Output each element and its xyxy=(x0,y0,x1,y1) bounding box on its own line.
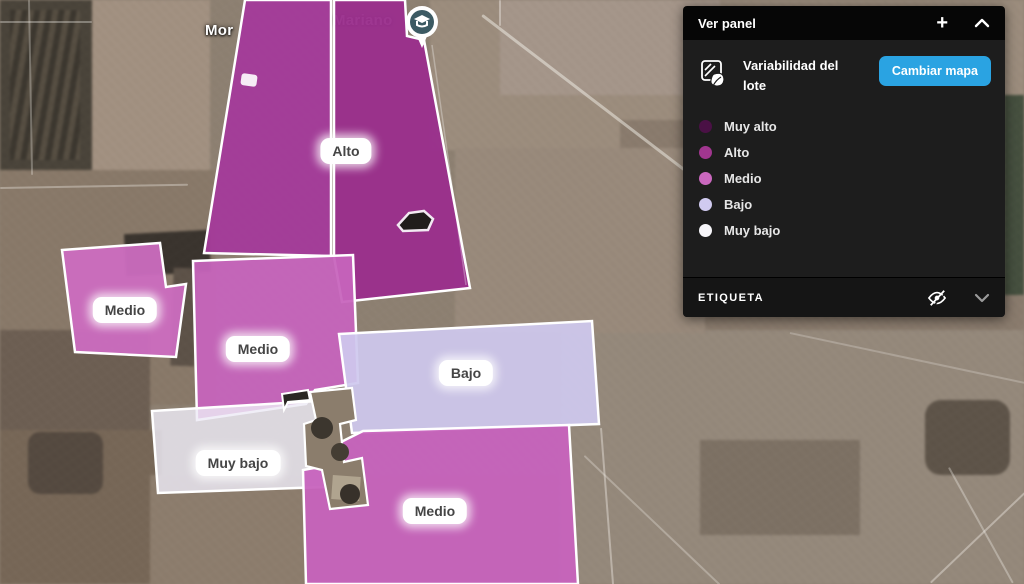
layer-name: Variabilidad del lote xyxy=(743,56,861,95)
legend-dot-alto xyxy=(699,146,712,159)
etiqueta-label: ETIQUETA xyxy=(698,292,764,304)
panel-header: Ver panel + xyxy=(683,6,1005,40)
map-pin[interactable] xyxy=(400,2,444,52)
zone-label-chip-medio-center: Medio xyxy=(226,336,290,362)
zone-label-chip-medio-bottom: Medio xyxy=(403,498,467,524)
panel-body: Variabilidad del lote Cambiar mapa Muy a… xyxy=(683,40,1005,317)
legend-dot-muy-bajo xyxy=(699,224,712,237)
legend-item: Muy alto xyxy=(699,113,989,139)
zone-label-chip-alto: Alto xyxy=(320,138,371,164)
zone-polygon-alto-left[interactable] xyxy=(204,0,331,256)
layer-row: Variabilidad del lote Cambiar mapa xyxy=(683,40,1005,101)
variability-icon xyxy=(699,58,729,88)
zone-label-chip-bajo: Bajo xyxy=(439,360,493,386)
legend-item: Muy bajo xyxy=(699,217,989,243)
chevron-up-icon xyxy=(974,17,990,29)
boundary-notch xyxy=(240,73,258,87)
legend-dot-medio xyxy=(699,172,712,185)
visibility-off-icon[interactable] xyxy=(926,289,948,307)
change-map-button[interactable]: Cambiar mapa xyxy=(879,56,991,86)
panel-title: Ver panel xyxy=(698,16,936,31)
ver-panel: Ver panel + Variabilidad del lote Cambia… xyxy=(683,6,1005,317)
legend-dot-muy-alto xyxy=(699,120,712,133)
legend-item: Alto xyxy=(699,139,989,165)
legend-item: Medio xyxy=(699,165,989,191)
legend: Muy alto Alto Medio Bajo Muy bajo xyxy=(683,101,1005,249)
chevron-down-icon[interactable] xyxy=(974,292,990,304)
collapse-panel-button[interactable] xyxy=(974,17,990,29)
satellite-map[interactable]: Mor Mariano Alto Medio Medio Bajo Muy ba… xyxy=(0,0,1024,584)
add-layer-button[interactable]: + xyxy=(936,13,948,33)
legend-item: Bajo xyxy=(699,191,989,217)
zone-label-chip-medio-left: Medio xyxy=(93,297,157,323)
etiqueta-section[interactable]: ETIQUETA xyxy=(683,277,1005,317)
legend-dot-bajo xyxy=(699,198,712,211)
zone-label-chip-muy-bajo: Muy bajo xyxy=(196,450,281,476)
zone-polygon-muy-bajo[interactable] xyxy=(152,401,325,493)
